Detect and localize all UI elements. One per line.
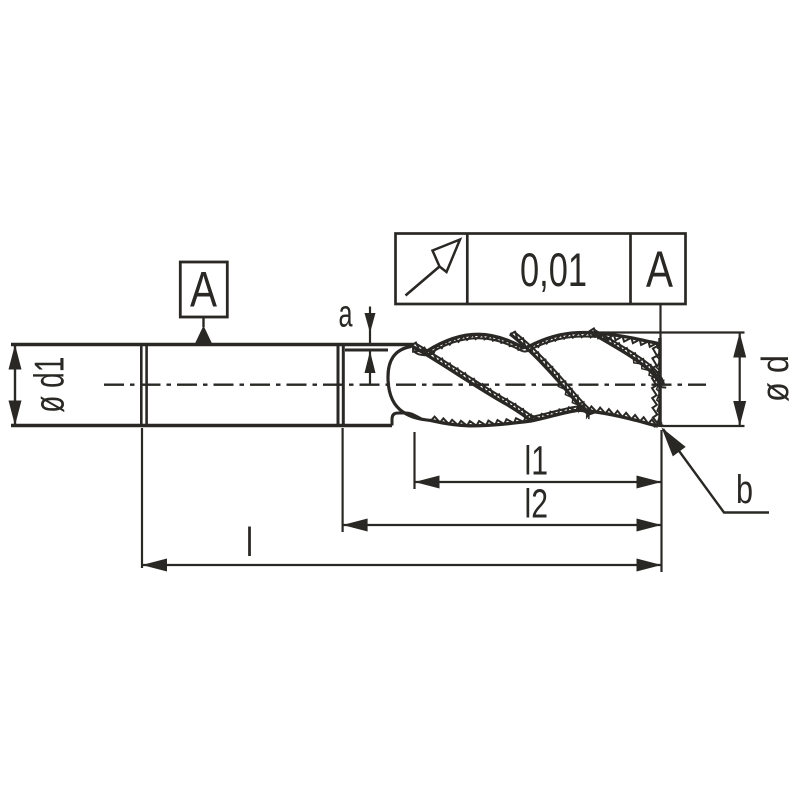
svg-text:l1: l1 bbox=[525, 438, 549, 484]
svg-text:l2: l2 bbox=[525, 481, 549, 527]
svg-text:A: A bbox=[190, 262, 218, 318]
svg-text:A: A bbox=[646, 241, 673, 298]
svg-text:a: a bbox=[339, 294, 354, 336]
svg-text:l: l bbox=[246, 519, 253, 565]
svg-text:b: b bbox=[736, 468, 753, 512]
svg-text:ø d1: ø d1 bbox=[26, 357, 73, 413]
svg-text:ø d: ø d bbox=[755, 355, 797, 402]
svg-text:0,01: 0,01 bbox=[520, 244, 587, 297]
